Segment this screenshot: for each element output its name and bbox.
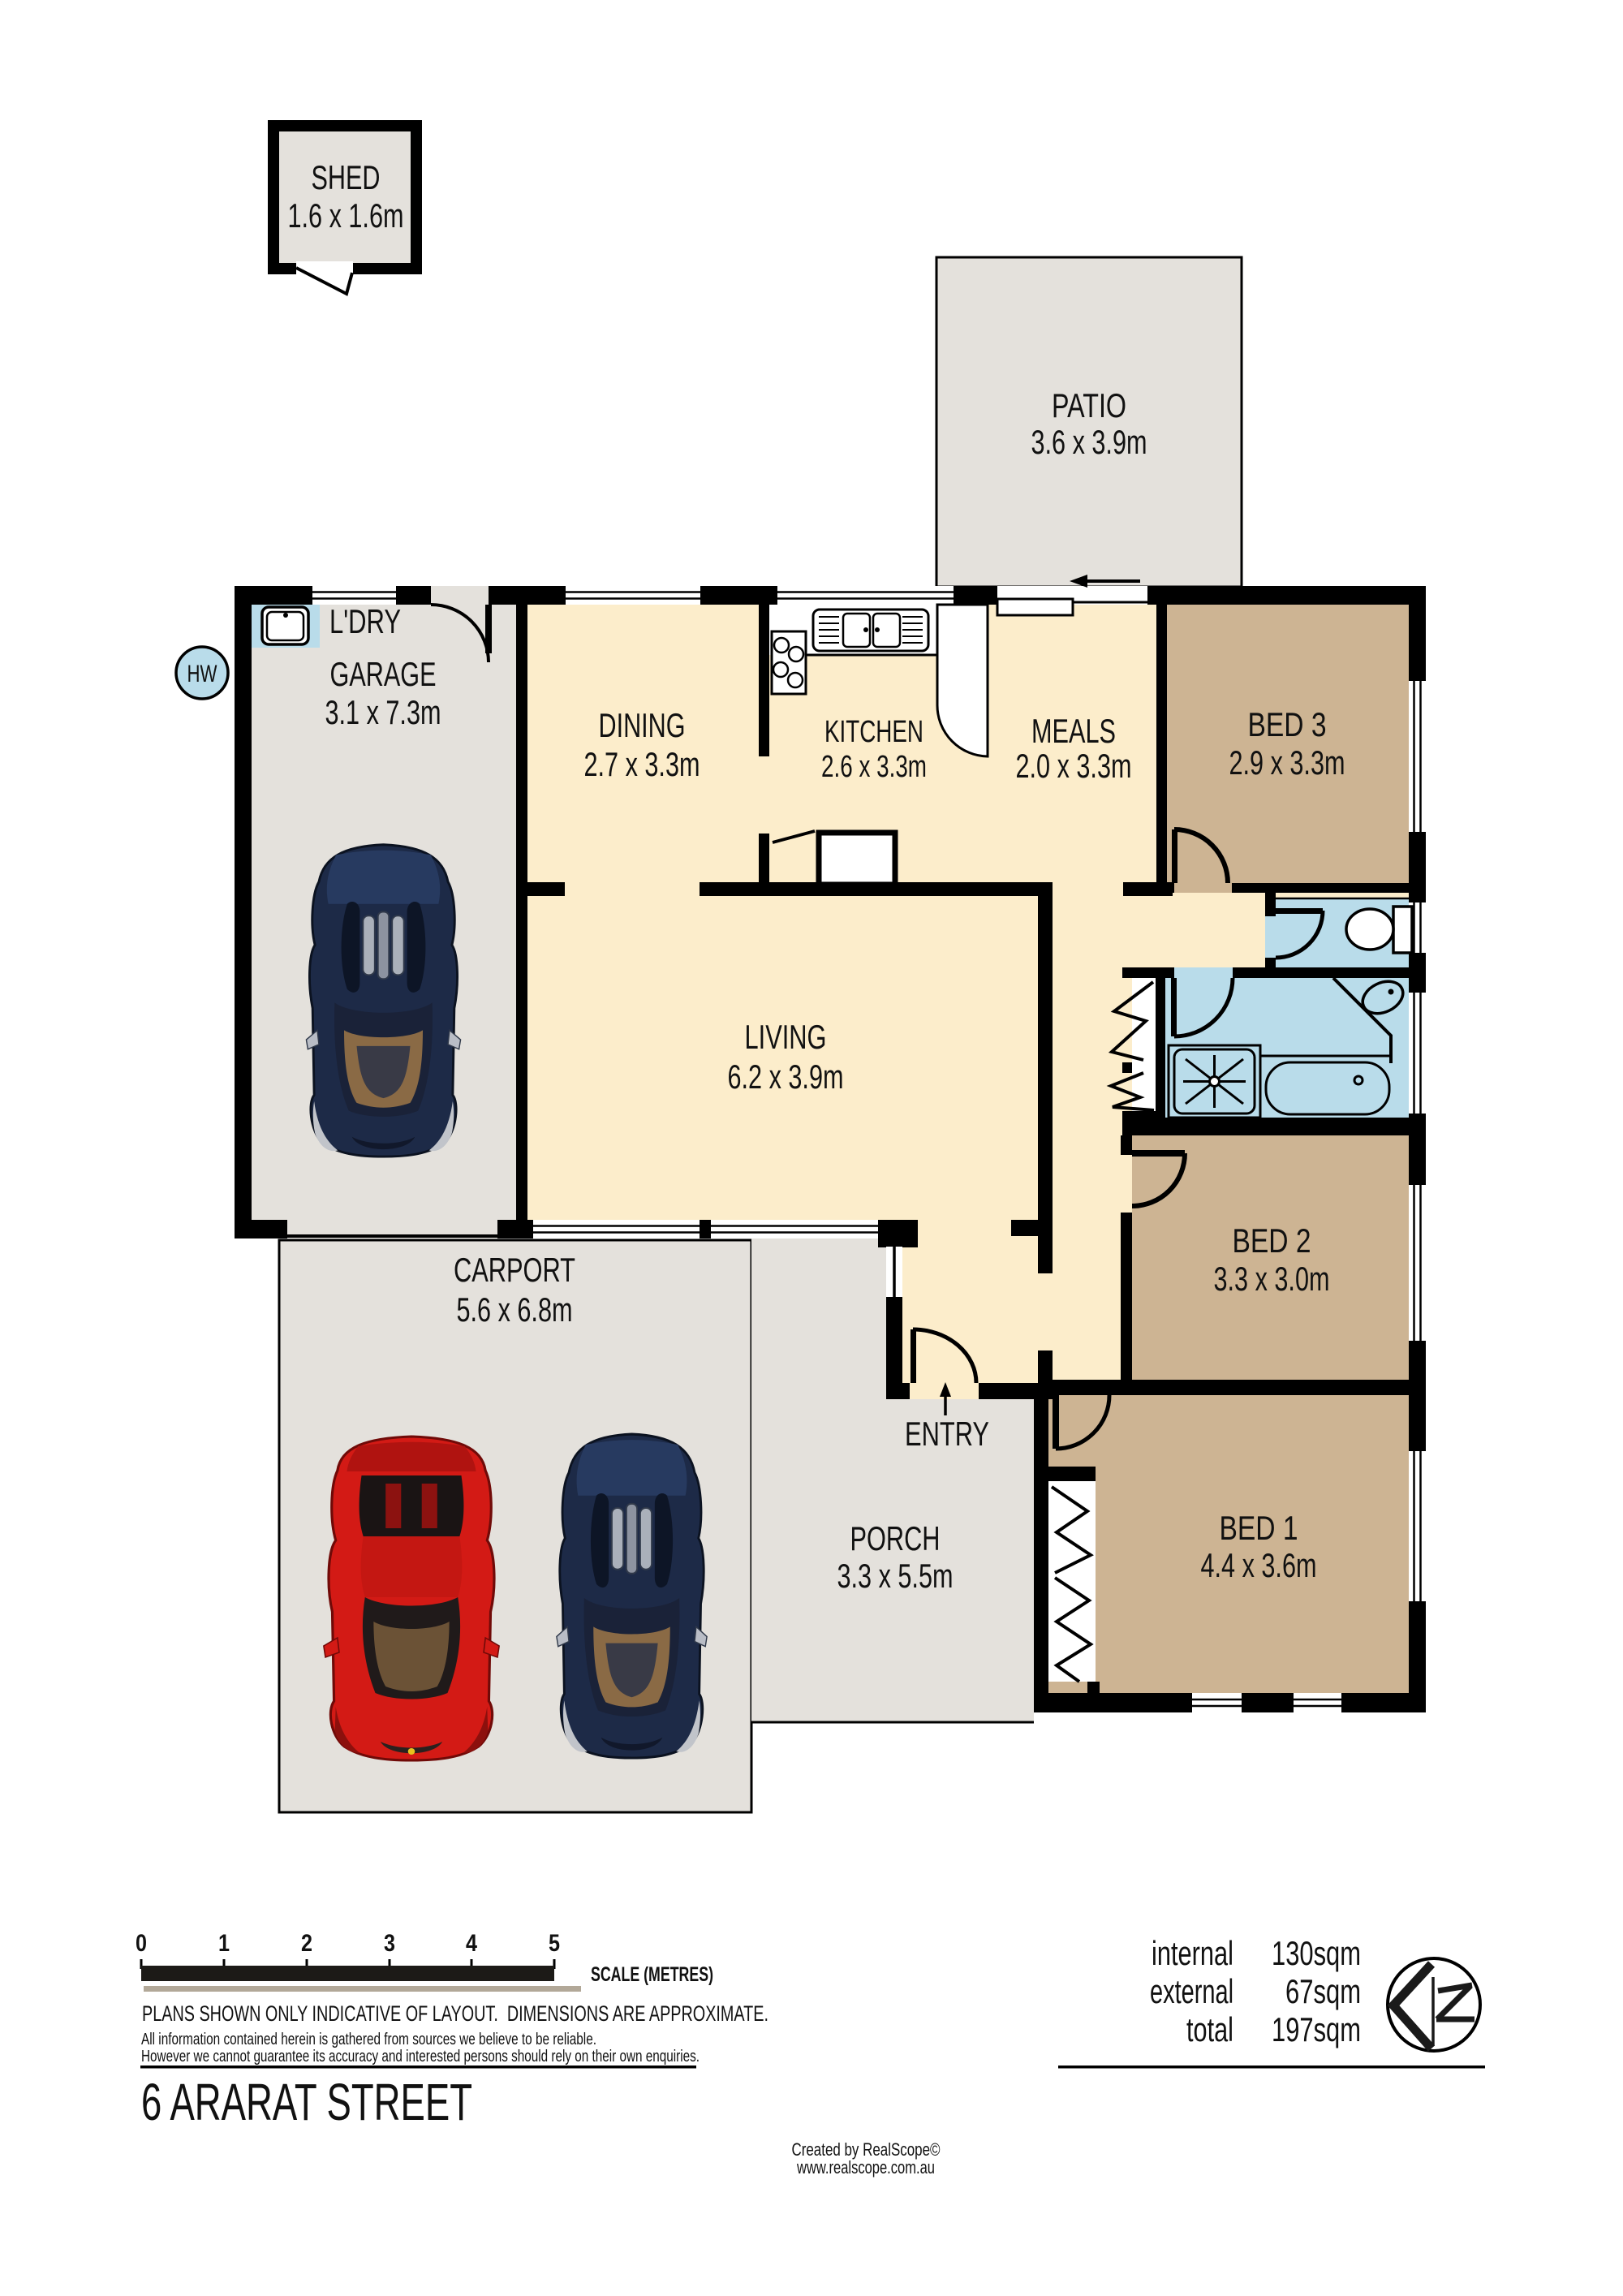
svg-text:4: 4 <box>466 1930 477 1957</box>
svg-text:0: 0 <box>136 1930 147 1957</box>
svg-text:BED 3: BED 3 <box>1248 705 1327 743</box>
svg-text:3: 3 <box>384 1930 395 1957</box>
svg-text:BED 1: BED 1 <box>1220 1509 1298 1547</box>
svg-text:external: external <box>1150 1972 1233 2010</box>
svg-text:2.0 x 3.3m: 2.0 x 3.3m <box>1016 747 1132 785</box>
svg-text:67sqm: 67sqm <box>1285 1972 1361 2010</box>
svg-text:6.2 x 3.9m: 6.2 x 3.9m <box>728 1058 844 1096</box>
svg-text:BED 2: BED 2 <box>1233 1221 1311 1260</box>
svg-text:PORCH: PORCH <box>850 1519 941 1557</box>
svg-text:1: 1 <box>218 1930 230 1957</box>
svg-text:197sqm: 197sqm <box>1272 2010 1361 2048</box>
svg-text:3.3 x 3.0m: 3.3 x 3.0m <box>1214 1260 1330 1298</box>
svg-text:130sqm: 130sqm <box>1272 1934 1361 1972</box>
svg-text:5.6 x 6.8m: 5.6 x 6.8m <box>457 1290 573 1329</box>
svg-text:LIVING: LIVING <box>745 1018 827 1056</box>
svg-text:3.3 x 5.5m: 3.3 x 5.5m <box>837 1557 954 1595</box>
svg-text:3.6 x 3.9m: 3.6 x 3.9m <box>1031 423 1147 461</box>
svg-text:2.7 x 3.3m: 2.7 x 3.3m <box>584 745 700 783</box>
svg-text:PLANS SHOWN ONLY INDICATIVE OF: PLANS SHOWN ONLY INDICATIVE OF LAYOUT. D… <box>142 2001 768 2026</box>
svg-text:2: 2 <box>301 1930 312 1957</box>
svg-text:MEALS: MEALS <box>1031 712 1116 750</box>
svg-text:PATIO: PATIO <box>1052 386 1126 424</box>
svg-text:6 ARARAT STREET: 6 ARARAT STREET <box>141 2073 472 2131</box>
svg-text:3.1 x 7.3m: 3.1 x 7.3m <box>325 693 441 731</box>
svg-text:2.6 x 3.3m: 2.6 x 3.3m <box>821 750 927 784</box>
svg-text:4.4 x 3.6m: 4.4 x 3.6m <box>1201 1546 1317 1584</box>
svg-text:However we cannot guarantee it: However we cannot guarantee its accuracy… <box>141 2048 700 2066</box>
svg-text:HW: HW <box>187 661 218 687</box>
svg-text:SHED: SHED <box>312 158 381 196</box>
svg-text:All information contained here: All information contained herein is gath… <box>141 2031 596 2048</box>
svg-text:total: total <box>1186 2010 1233 2048</box>
svg-text:internal: internal <box>1152 1934 1233 1972</box>
svg-text:CARPORT: CARPORT <box>454 1251 575 1289</box>
svg-text:2.9 x 3.3m: 2.9 x 3.3m <box>1229 743 1345 782</box>
svg-text:GARAGE: GARAGE <box>330 655 437 693</box>
svg-text:L'DRY: L'DRY <box>329 602 401 640</box>
svg-text:KITCHEN: KITCHEN <box>824 715 923 749</box>
svg-text:www.realscope.com.au: www.realscope.com.au <box>796 2157 935 2178</box>
svg-text:1.6 x 1.6m: 1.6 x 1.6m <box>288 196 404 235</box>
svg-text:SCALE (METRES): SCALE (METRES) <box>591 1963 713 1986</box>
svg-text:5: 5 <box>549 1930 560 1957</box>
svg-text:DINING: DINING <box>599 706 686 744</box>
svg-text:ENTRY: ENTRY <box>905 1415 989 1453</box>
